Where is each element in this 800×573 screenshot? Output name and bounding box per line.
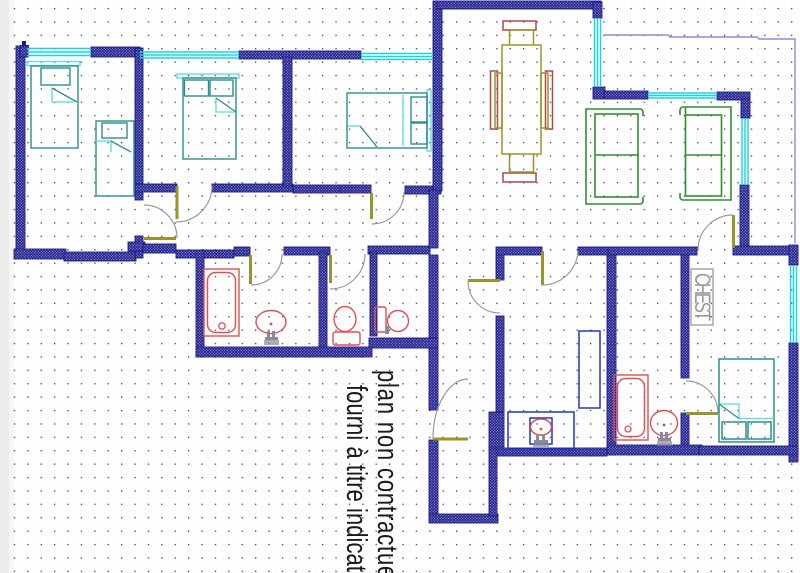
svg-text:plan non contractuel: plan non contractuel <box>371 370 402 573</box>
svg-text:CHEST: CHEST <box>689 273 714 321</box>
svg-text:fourni à titre indicatif: fourni à titre indicatif <box>340 385 371 573</box>
